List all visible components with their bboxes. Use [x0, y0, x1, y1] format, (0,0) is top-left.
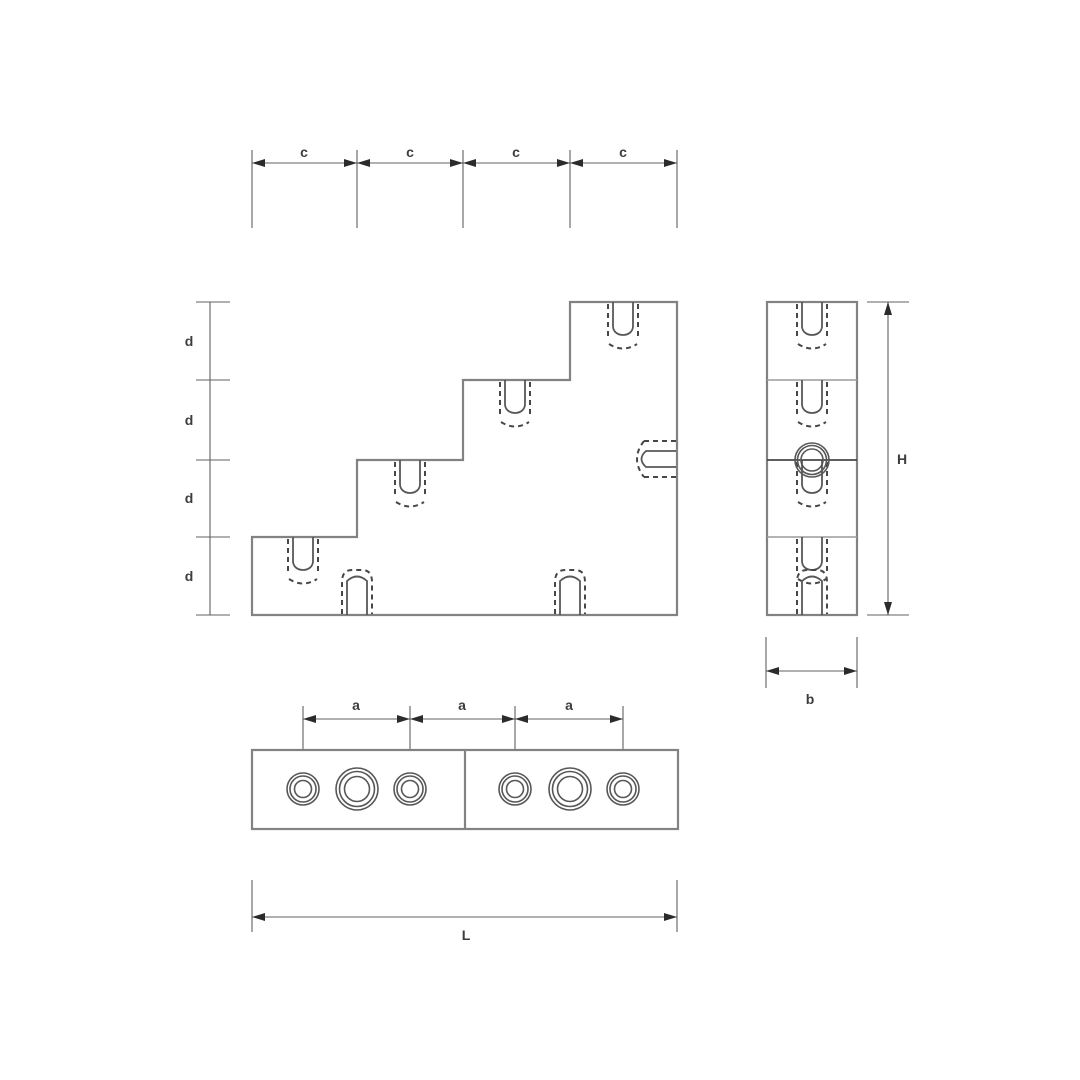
- dimension-L: L: [252, 880, 677, 943]
- dim-d-label-2: d: [185, 412, 194, 428]
- drawing-canvas: c c c c d d d d: [0, 0, 1080, 1080]
- arrowhead: [844, 667, 857, 675]
- arrowhead: [450, 159, 463, 167]
- dimension-c-chain: c c c c: [252, 144, 677, 228]
- dim-a-label-2: a: [458, 697, 466, 713]
- arrowhead: [252, 159, 265, 167]
- dimension-b: b: [766, 637, 857, 707]
- dim-d-label-3: d: [185, 490, 194, 506]
- arrowhead: [557, 159, 570, 167]
- arrowhead: [664, 913, 677, 921]
- dim-b-label: b: [806, 691, 815, 707]
- dim-a-label-3: a: [565, 697, 573, 713]
- bottom-view: [252, 750, 678, 829]
- dim-c-label-3: c: [512, 144, 520, 160]
- dim-c-label-4: c: [619, 144, 627, 160]
- dim-d-label-1: d: [185, 333, 194, 349]
- front-view-outline: [252, 302, 677, 615]
- arrowhead: [766, 667, 779, 675]
- arrowhead: [252, 913, 265, 921]
- arrowhead: [303, 715, 316, 723]
- dim-c-label-2: c: [406, 144, 414, 160]
- dim-d-label-4: d: [185, 568, 194, 584]
- dim-H-label: H: [897, 451, 907, 467]
- front-view: [252, 302, 677, 615]
- arrowhead: [397, 715, 410, 723]
- arrowhead: [664, 159, 677, 167]
- arrowhead: [884, 602, 892, 615]
- arrowhead: [463, 159, 476, 167]
- dim-L-label: L: [462, 927, 471, 943]
- dimension-H: H: [867, 302, 909, 615]
- arrowhead: [884, 302, 892, 315]
- side-view-outline: [767, 302, 857, 615]
- dimension-d-chain: d d d d: [185, 302, 230, 615]
- arrowhead: [610, 715, 623, 723]
- arrowhead: [502, 715, 515, 723]
- technical-drawing: c c c c d d d d: [0, 0, 1080, 1080]
- arrowhead: [515, 715, 528, 723]
- side-view: [767, 302, 857, 615]
- arrowhead: [570, 159, 583, 167]
- arrowhead: [357, 159, 370, 167]
- arrowhead: [410, 715, 423, 723]
- arrowhead: [344, 159, 357, 167]
- dim-a-label-1: a: [352, 697, 360, 713]
- dim-c-label-1: c: [300, 144, 308, 160]
